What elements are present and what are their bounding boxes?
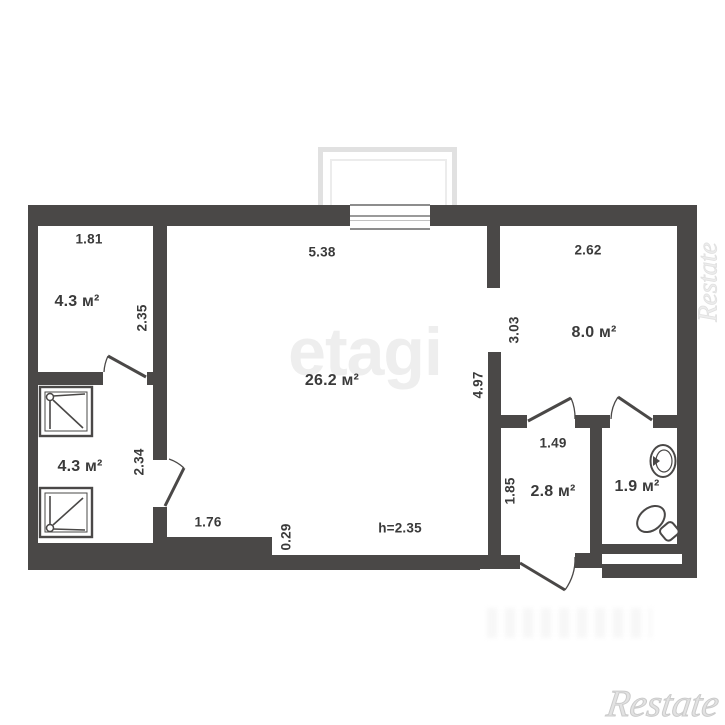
- door-arc-top-left-room: [104, 356, 146, 377]
- faint-watermark: [487, 608, 652, 638]
- dim-top-left-height: 2.35: [135, 304, 150, 331]
- shower-tray-icon: [40, 387, 92, 436]
- room-label-bottom-left: 4.3 м²: [57, 458, 102, 476]
- door-arc-shower-room: [165, 459, 184, 506]
- dim-bottom-left-height: 2.34: [132, 448, 147, 475]
- dim-bedroom-height: 3.03: [507, 316, 522, 343]
- room-label-top-left: 4.3 м²: [54, 293, 99, 311]
- door-arc-bedroom-wc: [611, 397, 652, 420]
- dim-top-left-width: 1.81: [75, 232, 102, 247]
- dim-bedroom-width: 2.62: [574, 243, 601, 258]
- brand-watermark-side: Restate: [693, 242, 724, 321]
- room-label-bedroom: 8.0 м²: [571, 324, 616, 342]
- shower-tray-icon: [40, 488, 92, 537]
- dim-hallway-height: 1.85: [503, 477, 518, 504]
- dim-living-height: 4.97: [471, 371, 486, 398]
- room-label-hallway: 2.8 м²: [530, 483, 575, 501]
- dim-living-step: 0.29: [279, 523, 294, 550]
- sink-icon: [651, 445, 676, 477]
- entrance-door-arc: [520, 557, 575, 590]
- dim-hallway-width: 1.49: [539, 436, 566, 451]
- ceiling-height-label: h=2.35: [378, 521, 422, 536]
- dim-living-width: 5.38: [308, 245, 335, 260]
- room-label-wc: 1.9 м²: [614, 478, 659, 496]
- brand-watermark: Restate: [604, 682, 722, 725]
- door-arc-bedroom-hall: [528, 398, 575, 421]
- floor-plan: etagi Restate Restate 4.3 м² 4.3 м² 26.2…: [0, 0, 725, 725]
- room-label-living: 26.2 м²: [305, 372, 359, 390]
- dim-living-bottom-width: 1.76: [194, 515, 221, 530]
- toilet-icon: [632, 501, 680, 543]
